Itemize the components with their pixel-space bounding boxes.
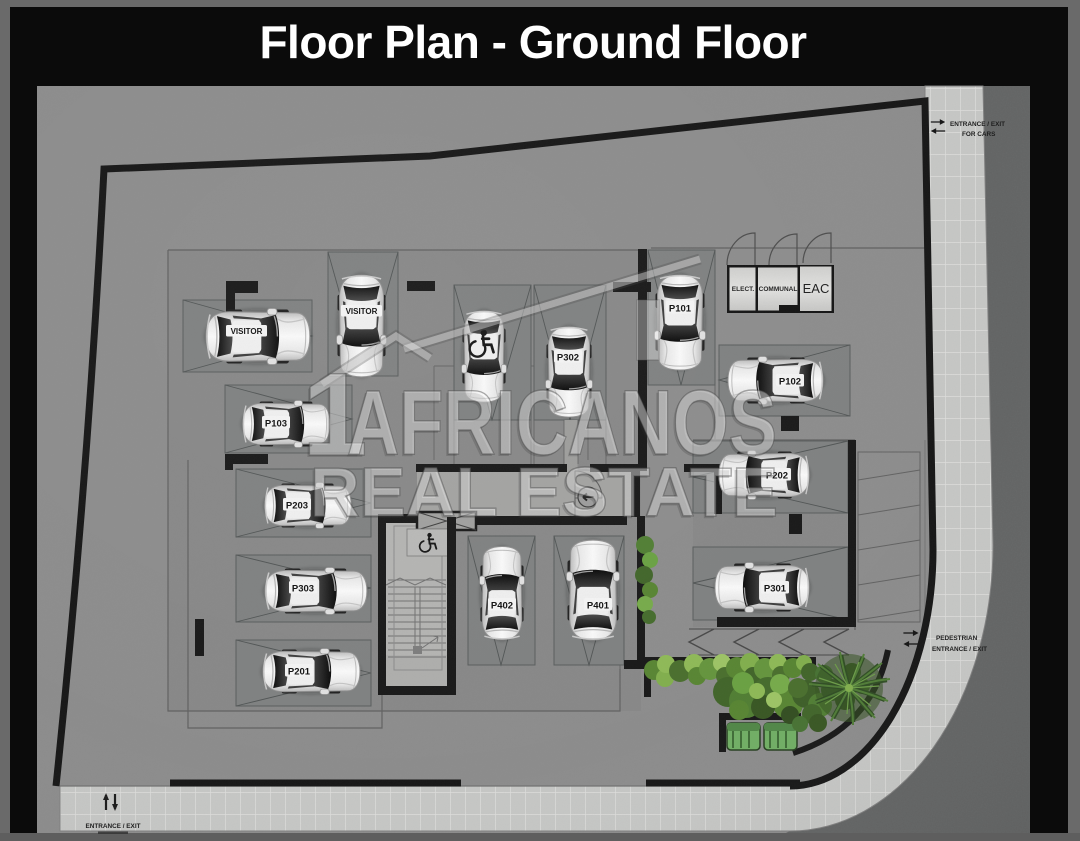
svg-text:Floor Plan - Ground Floor: Floor Plan - Ground Floor [259,16,807,68]
